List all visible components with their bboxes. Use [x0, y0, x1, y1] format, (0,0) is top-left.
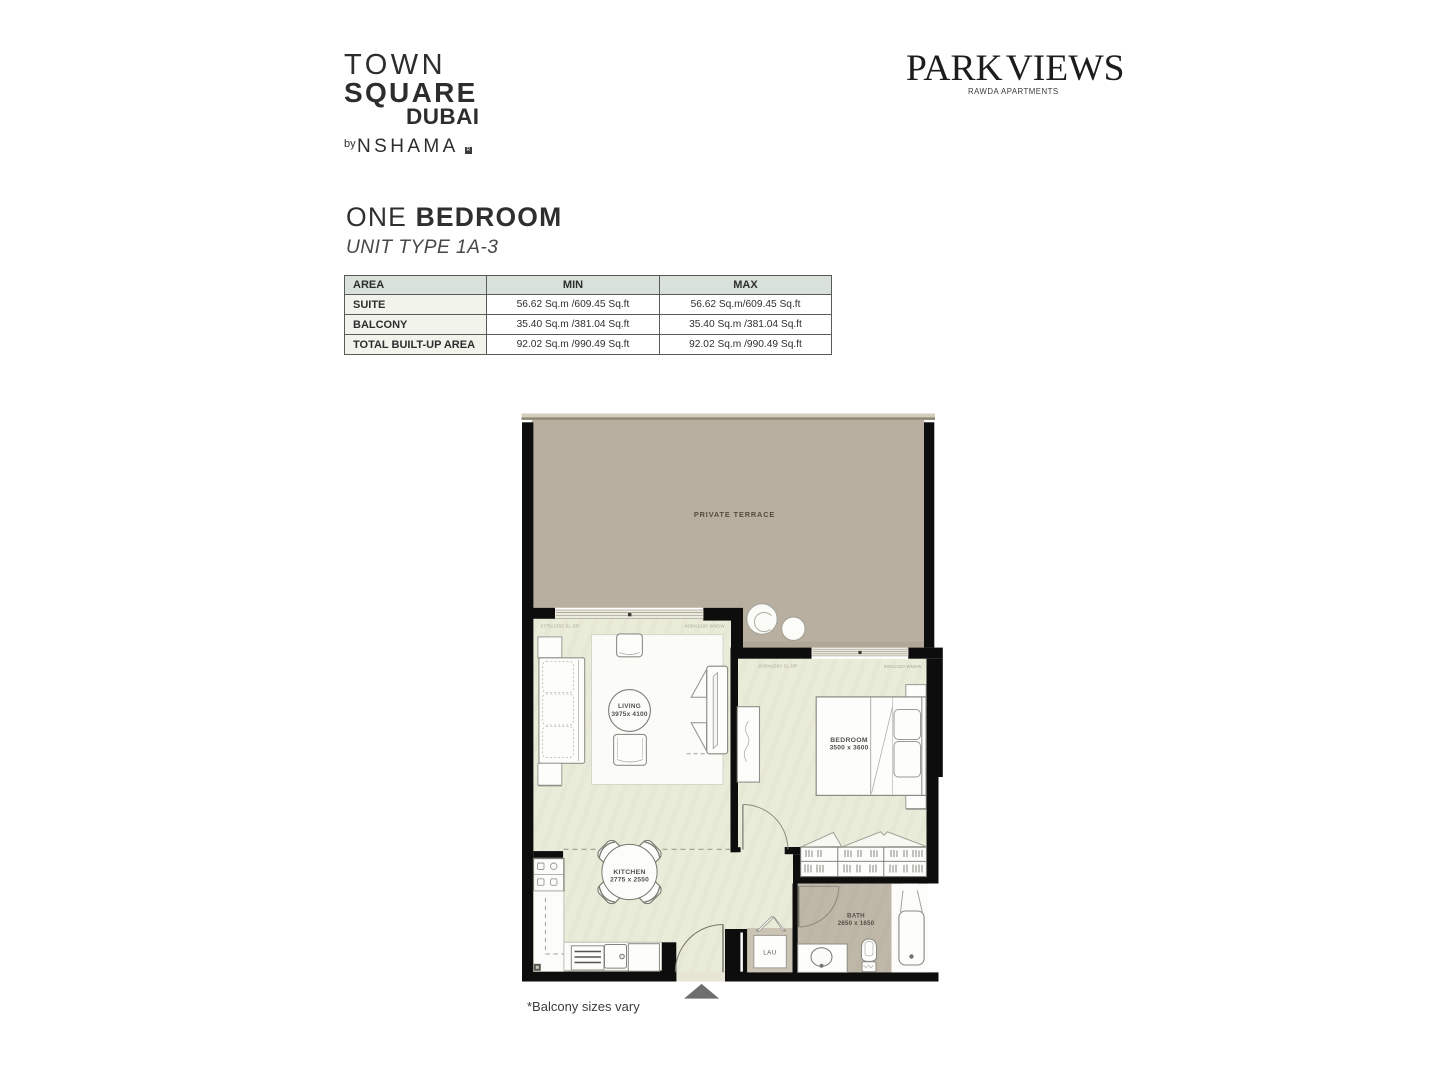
svg-text:PRIVATE TERRACE: PRIVATE TERRACE [694, 510, 775, 519]
svg-text:2775x2350 SL.DR: 2775x2350 SL.DR [541, 623, 580, 628]
svg-text:2775 x 2550: 2775 x 2550 [610, 876, 649, 883]
svg-text:KITCHEN: KITCHEN [613, 869, 645, 876]
svg-text:4200x2100 WNDW: 4200x2100 WNDW [685, 624, 726, 629]
svg-text:BATH: BATH [847, 913, 865, 920]
svg-text:2650 x 1650: 2650 x 1650 [838, 920, 875, 927]
svg-text:BEDROOM: BEDROOM [830, 737, 868, 744]
svg-text:3975x 4100: 3975x 4100 [611, 711, 648, 718]
svg-text:LAU: LAU [763, 950, 777, 957]
svg-text:2000x2350 SL.DR: 2000x2350 SL.DR [759, 664, 798, 669]
svg-text:3500 x 3600: 3500 x 3600 [830, 744, 869, 751]
svg-text:900x2100 WNDW: 900x2100 WNDW [884, 664, 922, 669]
svg-text:LIVING: LIVING [618, 703, 641, 710]
